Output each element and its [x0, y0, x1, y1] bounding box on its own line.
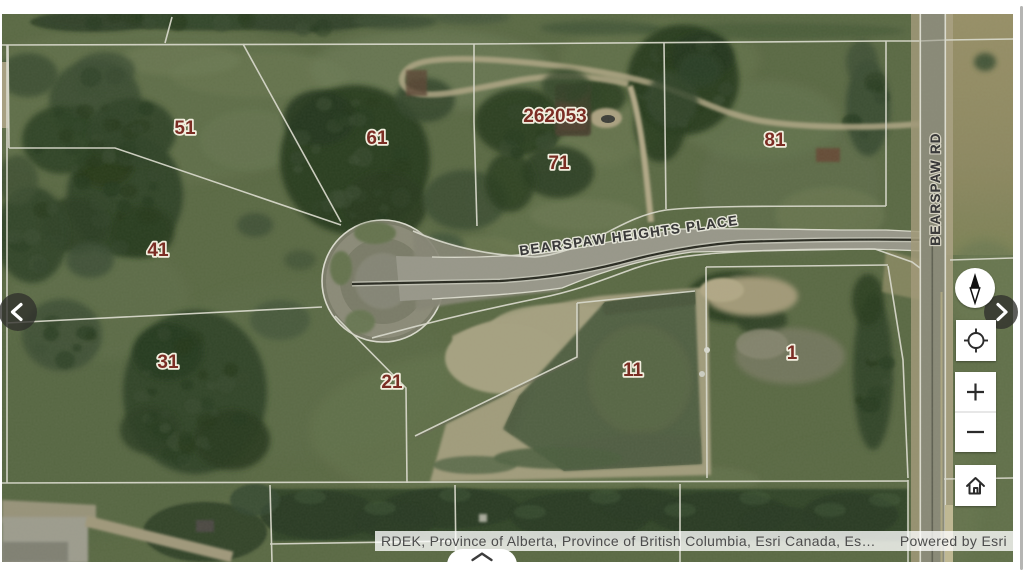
- svg-text:71: 71: [548, 153, 570, 174]
- svg-text:41: 41: [147, 240, 169, 261]
- svg-text:61: 61: [366, 128, 388, 149]
- svg-text:11: 11: [623, 360, 644, 381]
- svg-text:81: 81: [764, 130, 786, 151]
- svg-text:262053: 262053: [523, 106, 586, 127]
- svg-text:BEARSPAW RD: BEARSPAW RD: [928, 132, 943, 245]
- svg-text:21: 21: [381, 372, 403, 393]
- svg-text:1: 1: [787, 343, 798, 364]
- svg-text:51: 51: [174, 118, 196, 139]
- svg-text:31: 31: [157, 352, 179, 373]
